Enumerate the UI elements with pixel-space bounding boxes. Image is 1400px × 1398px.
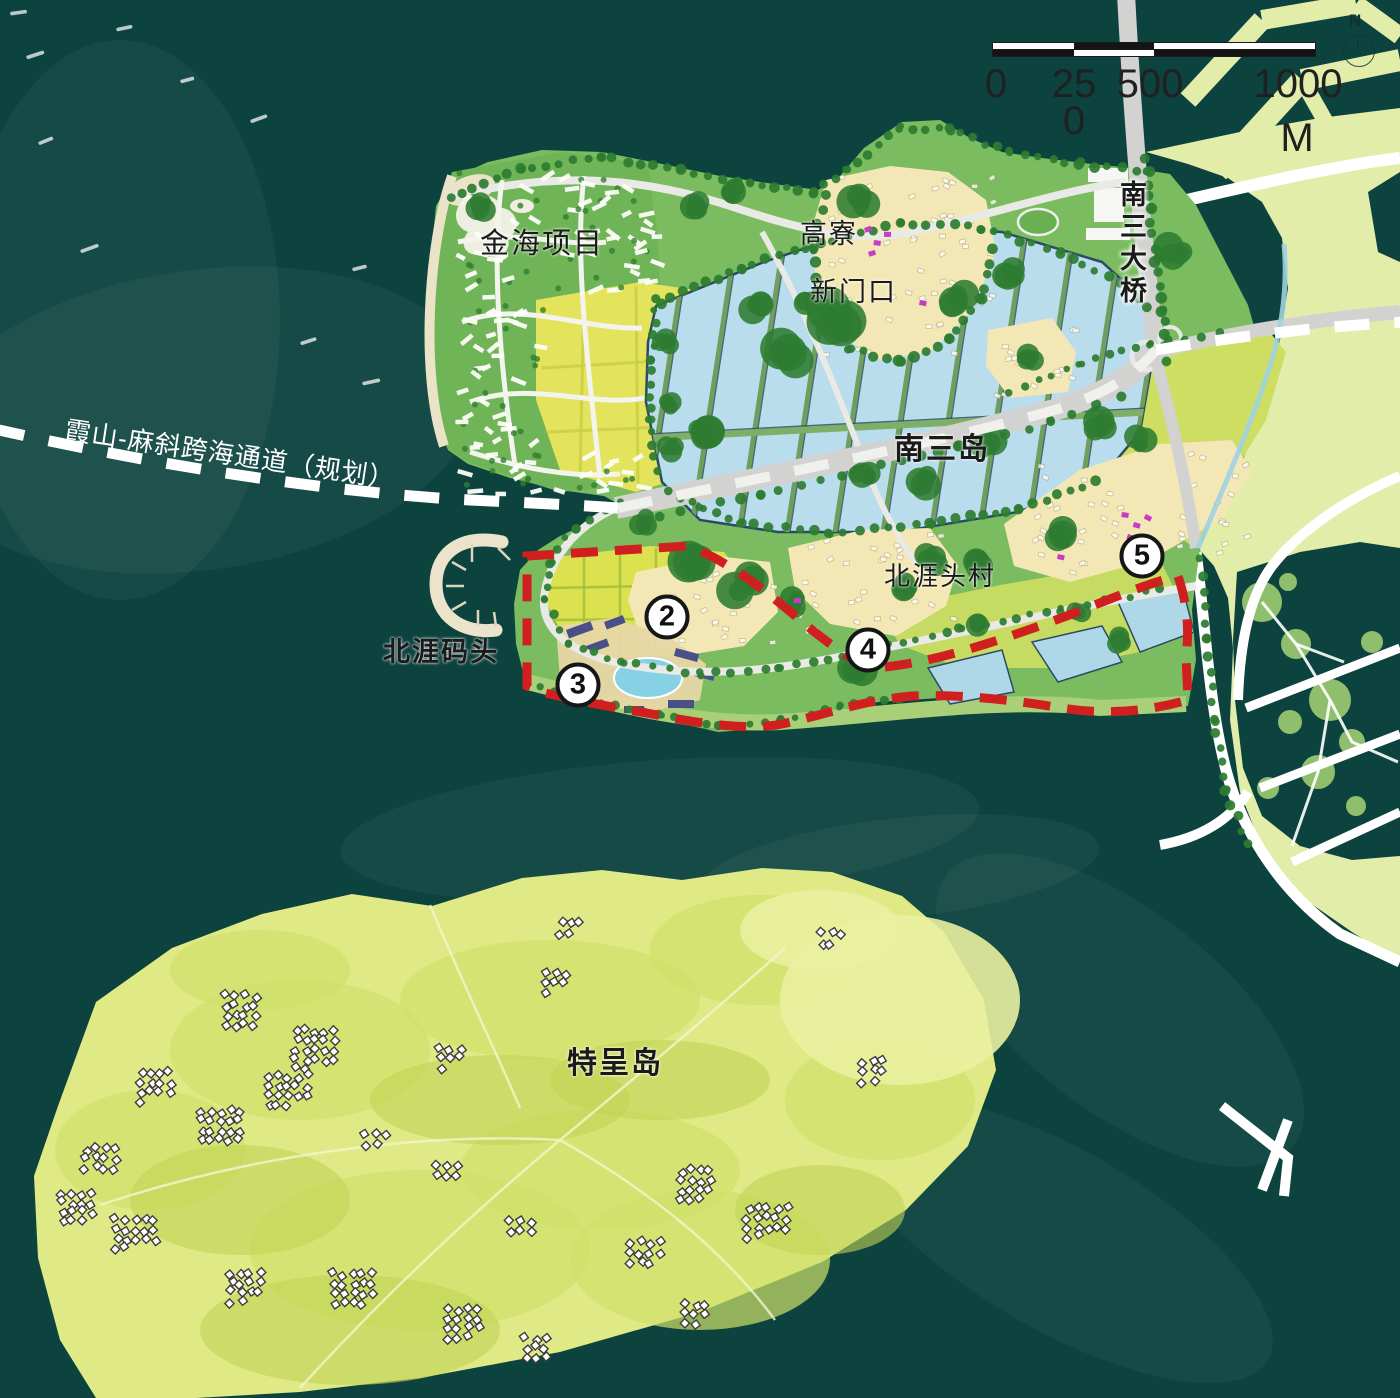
- label-beiyatou-village: 北涯头村: [884, 556, 996, 593]
- masterplan-map: 0 250 500 1000 M N 金海项目 高寮 新门口 南三岛 北涯头村 …: [0, 0, 1400, 1398]
- north-label: N: [1349, 11, 1361, 31]
- north-arrow-icon: [1343, 35, 1375, 67]
- scale-bar: 0 250 500 1000 M: [992, 42, 1316, 57]
- scale-tick: 1000: [1254, 66, 1343, 103]
- area-marker-3[interactable]: 3: [556, 663, 601, 708]
- label-gaoliao: 高寮: [800, 212, 858, 251]
- scale-tick: 250: [1047, 66, 1101, 140]
- map-canvas: [0, 0, 1400, 1398]
- area-marker-2[interactable]: 2: [645, 595, 690, 640]
- north-tick: [1357, 39, 1359, 48]
- label-nansan-bridge: 南三大桥: [1112, 180, 1151, 308]
- scale-unit: M: [1280, 116, 1313, 161]
- label-jinhai: 金海项目: [480, 220, 604, 262]
- label-xinmenkou: 新门口: [810, 270, 897, 309]
- area-marker-5[interactable]: 5: [1120, 534, 1165, 579]
- label-nansandao: 南三岛: [894, 424, 990, 468]
- scale-tick: 500: [1117, 66, 1184, 103]
- label-techeng-island: 特呈岛: [567, 1038, 663, 1082]
- scale-tick: 0: [985, 66, 1007, 103]
- area-marker-4[interactable]: 4: [846, 628, 891, 673]
- label-beiya-wharf: 北涯码头: [383, 630, 499, 669]
